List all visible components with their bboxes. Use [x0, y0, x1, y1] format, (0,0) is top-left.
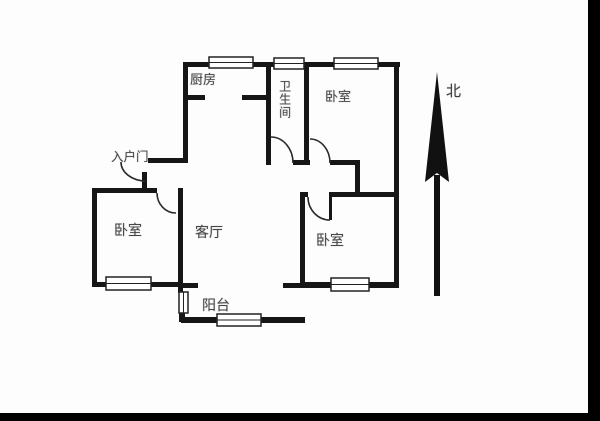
wall-bedroom-west-top: [92, 188, 157, 193]
wall-bedroom-west-left: [92, 188, 97, 287]
bedroom-north-window: [334, 58, 378, 69]
wall-kitchen-bottom-left: [183, 95, 205, 100]
bedroom-south-door-arc: [308, 197, 330, 220]
kitchen-label: 厨房: [190, 74, 216, 88]
bedroom-west-label: 卧室: [114, 224, 142, 239]
bedroom-north-door-arc: [310, 139, 330, 163]
floor-plan-drawing: [0, 0, 600, 421]
wall-bedroom-south-top: [330, 192, 399, 197]
wall-living-room-bottom-west: [183, 283, 198, 288]
frame-bar-bottom: [0, 413, 600, 421]
wall-kitchen-left: [183, 62, 188, 162]
living-room-label: 客厅: [195, 226, 223, 241]
bedroom-south-label: 卧室: [316, 234, 344, 249]
wall-hall-east: [330, 160, 358, 165]
wall-hall-between-doors: [293, 160, 310, 165]
bathroom-window: [274, 58, 304, 69]
bathroom-label: 卫生间: [278, 80, 291, 124]
north-label: 北: [446, 83, 461, 100]
north-arrow-icon: [425, 72, 449, 296]
wall-entry: [148, 158, 188, 163]
wall-bathroom-left: [266, 62, 271, 165]
wall-bedroom-south-door-panel: [329, 192, 332, 220]
kitchen-window: [209, 57, 253, 68]
frame-bar-right: [588, 0, 600, 421]
bedroom-west-window: [106, 277, 151, 290]
balcony-window: [217, 314, 261, 326]
wall-bedroom-south-left: [300, 192, 305, 288]
bedroom-north-label: 卧室: [325, 91, 351, 105]
balcony-left-window: [179, 292, 188, 313]
floor-plan-canvas: 厨房 卫生间 卧室 入户门 卧室 客厅 卧室 阳台 北: [0, 0, 600, 421]
bathroom-door-arc: [271, 137, 293, 163]
wall-right: [394, 62, 399, 288]
wall-bathroom-right: [304, 62, 309, 165]
balcony-label: 阳台: [202, 299, 230, 314]
wall-hall-divider: [355, 160, 360, 197]
wall-living-room-left: [178, 188, 183, 293]
wall-bedroom-south-top-stub: [300, 192, 308, 197]
bedroom-west-door-arc: [157, 193, 176, 213]
entrance-door-label: 入户门: [111, 150, 149, 164]
bedroom-south-window: [331, 278, 369, 291]
north-arrow-tail: [434, 175, 440, 296]
doors-group: [121, 137, 330, 220]
